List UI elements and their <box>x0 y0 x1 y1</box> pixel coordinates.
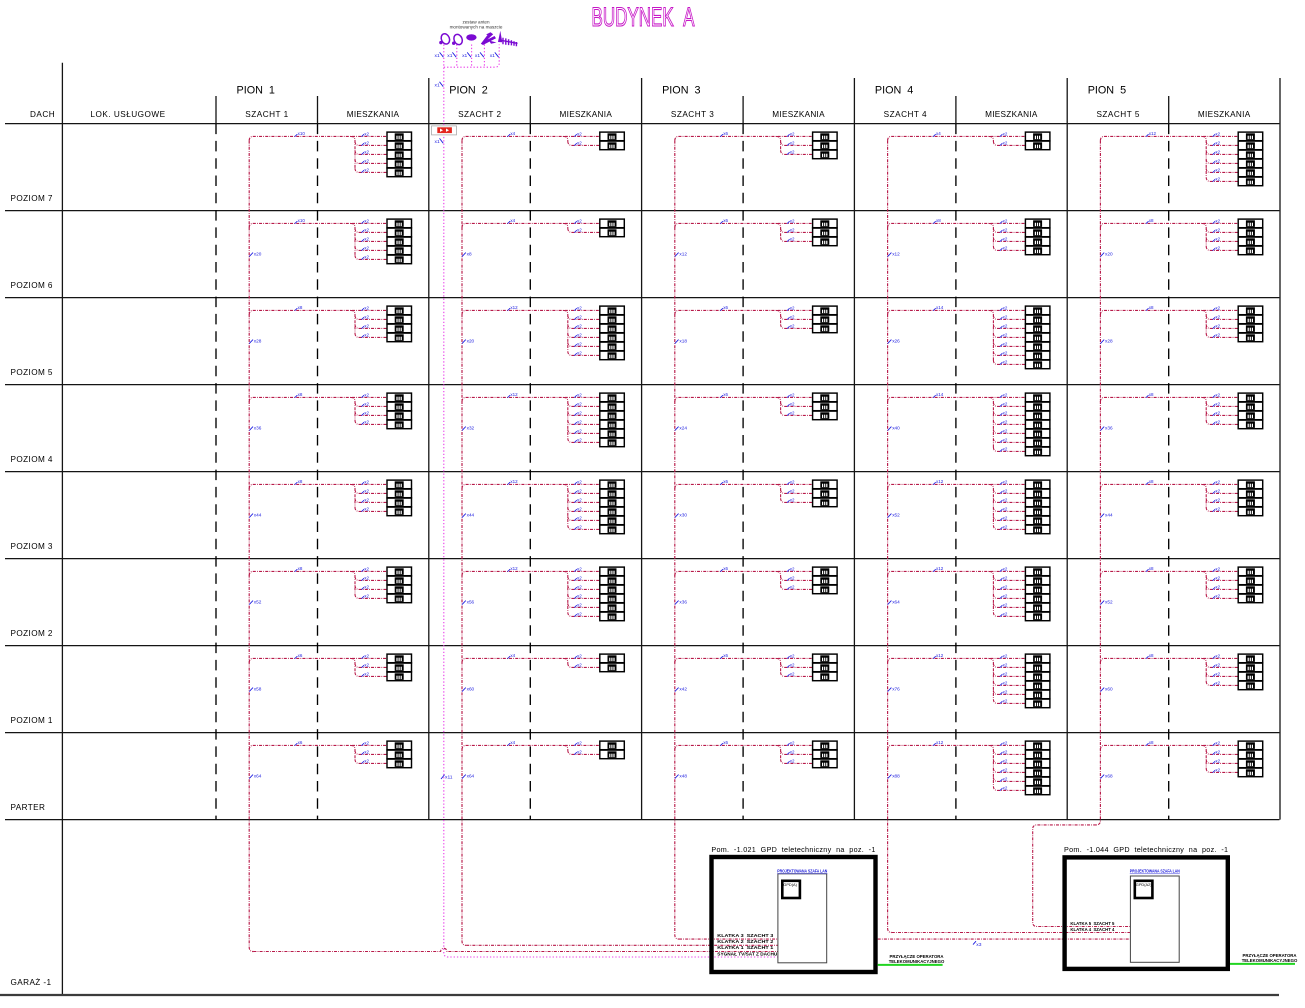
svg-text:x2: x2 <box>577 131 582 136</box>
svg-text:x2: x2 <box>1215 680 1220 685</box>
svg-text:x36: x36 <box>679 600 687 605</box>
svg-text:POZIOM 2: POZIOM 2 <box>11 629 53 638</box>
svg-text:x2: x2 <box>577 323 582 328</box>
svg-text:KLATKA 1 SZACHT 1: KLATKA 1 SZACHT 1 <box>717 945 774 950</box>
svg-text:x10: x10 <box>298 218 306 223</box>
svg-text:x10: x10 <box>298 131 306 136</box>
svg-text:x2: x2 <box>577 419 582 424</box>
svg-text:x2: x2 <box>1003 680 1008 685</box>
svg-text:x2: x2 <box>1215 506 1220 511</box>
svg-text:x26: x26 <box>892 339 900 344</box>
svg-text:x28: x28 <box>1105 339 1113 344</box>
svg-text:x2: x2 <box>790 488 795 493</box>
svg-text:x2: x2 <box>364 662 369 667</box>
svg-text:x1: x1 <box>462 53 467 59</box>
svg-text:x2: x2 <box>1215 218 1220 223</box>
svg-text:MIESZKANIA: MIESZKANIA <box>1198 110 1251 119</box>
svg-text:x2: x2 <box>577 314 582 319</box>
svg-text:x2: x2 <box>1003 323 1008 328</box>
svg-text:POZIOM 5: POZIOM 5 <box>11 368 53 377</box>
svg-text:x2: x2 <box>790 314 795 319</box>
svg-text:x2: x2 <box>364 419 369 424</box>
svg-text:x24: x24 <box>679 426 687 431</box>
svg-text:x2: x2 <box>1003 332 1008 337</box>
svg-text:x2: x2 <box>1003 785 1008 790</box>
svg-text:x2: x2 <box>1003 740 1008 745</box>
svg-text:x2: x2 <box>577 401 582 406</box>
svg-text:POZIOM 3: POZIOM 3 <box>11 542 53 551</box>
svg-text:x2: x2 <box>1215 566 1220 571</box>
svg-text:x2: x2 <box>790 131 795 136</box>
svg-text:x2: x2 <box>790 566 795 571</box>
svg-text:x1: x1 <box>447 53 452 59</box>
svg-text:x4: x4 <box>510 218 515 223</box>
svg-text:PARTER: PARTER <box>11 803 46 812</box>
svg-text:SZACHT 1: SZACHT 1 <box>245 110 288 119</box>
svg-text:PION 1: PION 1 <box>237 84 275 96</box>
svg-text:x30: x30 <box>679 513 687 518</box>
svg-text:PION 4: PION 4 <box>875 84 913 96</box>
svg-text:x2: x2 <box>364 671 369 676</box>
svg-text:x20: x20 <box>254 252 262 257</box>
svg-text:x40: x40 <box>892 426 900 431</box>
svg-text:MIESZKANIA: MIESZKANIA <box>772 110 825 119</box>
svg-text:x2: x2 <box>364 131 369 136</box>
svg-text:x6: x6 <box>723 131 728 136</box>
svg-text:x6: x6 <box>298 740 303 745</box>
svg-text:x11: x11 <box>445 775 453 781</box>
svg-text:x2: x2 <box>364 167 369 172</box>
svg-text:x32: x32 <box>467 426 475 431</box>
svg-text:x28: x28 <box>254 339 262 344</box>
svg-text:x2: x2 <box>1215 314 1220 319</box>
svg-text:TELEKOMUNIKACYJNEGO: TELEKOMUNIKACYJNEGO <box>889 959 945 964</box>
svg-text:KLATKA 5 SZACHT 5: KLATKA 5 SZACHT 5 <box>1070 921 1115 926</box>
svg-text:SZACHT 2: SZACHT 2 <box>458 110 501 119</box>
svg-text:x2: x2 <box>1215 749 1220 754</box>
svg-text:x8: x8 <box>467 252 472 257</box>
svg-text:x2: x2 <box>364 506 369 511</box>
svg-text:montowanych na maszcie: montowanych na maszcie <box>450 25 503 30</box>
svg-text:SYGNAŁ TV/SAT Z DACHU: SYGNAŁ TV/SAT Z DACHU <box>717 951 777 956</box>
svg-text:x2: x2 <box>1215 227 1220 232</box>
svg-text:x2: x2 <box>577 140 582 145</box>
svg-text:x2: x2 <box>1003 671 1008 676</box>
svg-text:x2: x2 <box>577 227 582 232</box>
svg-text:x2: x2 <box>577 515 582 520</box>
svg-text:x2: x2 <box>790 758 795 763</box>
svg-text:POZIOM 4: POZIOM 4 <box>11 455 53 464</box>
svg-text:MIESZKANIA: MIESZKANIA <box>347 110 400 119</box>
svg-text:x2: x2 <box>790 401 795 406</box>
svg-text:x2: x2 <box>1003 446 1008 451</box>
svg-text:x2: x2 <box>577 740 582 745</box>
svg-text:x2: x2 <box>1215 392 1220 397</box>
svg-text:x2: x2 <box>1215 584 1220 589</box>
svg-text:x52: x52 <box>254 600 262 605</box>
svg-text:x2: x2 <box>1003 593 1008 598</box>
svg-text:x2: x2 <box>1215 332 1220 337</box>
svg-text:LOK. USŁUGOWE: LOK. USŁUGOWE <box>90 110 165 119</box>
svg-text:BUDYNEK A: BUDYNEK A <box>592 2 695 32</box>
svg-text:x8: x8 <box>936 218 941 223</box>
svg-text:x12: x12 <box>510 305 518 310</box>
svg-text:x64: x64 <box>892 600 900 605</box>
svg-text:x2: x2 <box>577 437 582 442</box>
svg-text:x2: x2 <box>1003 314 1008 319</box>
svg-text:x2: x2 <box>1003 401 1008 406</box>
svg-text:x2: x2 <box>790 410 795 415</box>
svg-text:x14: x14 <box>936 392 944 397</box>
svg-text:x2: x2 <box>577 488 582 493</box>
svg-text:x2: x2 <box>1003 515 1008 520</box>
svg-text:x2: x2 <box>1003 662 1008 667</box>
svg-text:x6: x6 <box>723 392 728 397</box>
svg-text:x2: x2 <box>364 314 369 319</box>
svg-text:x2: x2 <box>790 227 795 232</box>
svg-text:x8: x8 <box>1149 566 1154 571</box>
svg-text:x2: x2 <box>1003 611 1008 616</box>
svg-text:x2: x2 <box>1003 653 1008 658</box>
svg-text:x48: x48 <box>679 774 687 779</box>
svg-text:x20: x20 <box>1105 252 1113 257</box>
svg-text:SZACHT 4: SZACHT 4 <box>884 110 927 119</box>
svg-text:x2: x2 <box>790 479 795 484</box>
svg-text:x2: x2 <box>364 653 369 658</box>
svg-text:x2: x2 <box>1003 497 1008 502</box>
svg-text:x2: x2 <box>1215 245 1220 250</box>
svg-text:x2: x2 <box>364 488 369 493</box>
svg-text:x2: x2 <box>1215 131 1220 136</box>
svg-text:PROJEKTOWANA SZAFA LAN: PROJEKTOWANA SZAFA LAN <box>777 869 827 874</box>
svg-text:x2: x2 <box>1003 131 1008 136</box>
svg-text:x18: x18 <box>679 339 687 344</box>
svg-text:x8: x8 <box>1149 653 1154 658</box>
svg-text:x12: x12 <box>892 252 900 257</box>
svg-text:x2: x2 <box>790 584 795 589</box>
svg-text:x1: x1 <box>435 53 440 59</box>
svg-text:x2: x2 <box>1215 671 1220 676</box>
svg-text:x2: x2 <box>1215 488 1220 493</box>
svg-text:x2: x2 <box>1215 140 1220 145</box>
svg-text:x2: x2 <box>364 566 369 571</box>
svg-text:x2: x2 <box>364 401 369 406</box>
svg-text:x2: x2 <box>577 392 582 397</box>
svg-text:x2: x2 <box>1003 218 1008 223</box>
svg-text:x2: x2 <box>577 611 582 616</box>
svg-text:POZIOM 1: POZIOM 1 <box>11 716 53 725</box>
svg-text:x2: x2 <box>577 602 582 607</box>
svg-text:x6: x6 <box>723 740 728 745</box>
svg-text:KLATKA 3 SZACHT 3: KLATKA 3 SZACHT 3 <box>717 933 774 938</box>
svg-text:MIESZKANIA: MIESZKANIA <box>560 110 613 119</box>
svg-text:x2: x2 <box>790 671 795 676</box>
svg-text:x1: x1 <box>490 53 495 59</box>
svg-text:x2: x2 <box>1215 236 1220 241</box>
svg-text:x2: x2 <box>1003 566 1008 571</box>
svg-text:x8: x8 <box>1149 218 1154 223</box>
svg-text:x2: x2 <box>364 593 369 598</box>
svg-text:x2: x2 <box>790 749 795 754</box>
svg-text:x2: x2 <box>1215 479 1220 484</box>
svg-text:x2: x2 <box>1003 437 1008 442</box>
svg-text:GARAŻ -1: GARAŻ -1 <box>11 977 52 987</box>
svg-text:Pom. -1.044 GPD teletechnic: Pom. -1.044 GPD teletechniczny na poz. -… <box>1064 845 1228 854</box>
svg-text:x2: x2 <box>364 575 369 580</box>
svg-text:x8: x8 <box>1149 305 1154 310</box>
svg-text:x2: x2 <box>577 341 582 346</box>
svg-text:x2: x2 <box>577 749 582 754</box>
svg-text:x2: x2 <box>577 662 582 667</box>
svg-text:KLATKA 4 SZACHT 4: KLATKA 4 SZACHT 4 <box>1070 927 1115 932</box>
svg-text:x68: x68 <box>1105 774 1113 779</box>
svg-text:x2: x2 <box>1215 767 1220 772</box>
svg-text:x2: x2 <box>364 245 369 250</box>
svg-text:x2: x2 <box>364 740 369 745</box>
svg-text:x2: x2 <box>1003 245 1008 250</box>
svg-text:x2: x2 <box>364 323 369 328</box>
svg-text:x6: x6 <box>723 653 728 658</box>
svg-text:x2: x2 <box>1215 419 1220 424</box>
svg-text:x64: x64 <box>467 774 475 779</box>
svg-text:x64: x64 <box>254 774 262 779</box>
svg-text:x12: x12 <box>1149 131 1157 136</box>
svg-text:x2: x2 <box>1003 776 1008 781</box>
svg-text:x12: x12 <box>936 566 944 571</box>
svg-text:x2: x2 <box>1215 149 1220 154</box>
svg-text:x56: x56 <box>467 600 475 605</box>
svg-text:x2: x2 <box>1003 419 1008 424</box>
svg-text:x2: x2 <box>577 305 582 310</box>
svg-text:x2: x2 <box>1003 524 1008 529</box>
svg-text:x2: x2 <box>577 497 582 502</box>
svg-text:x2: x2 <box>1003 350 1008 355</box>
svg-text:x2: x2 <box>1215 167 1220 172</box>
svg-text:x2: x2 <box>1215 758 1220 763</box>
svg-text:x1: x1 <box>435 82 440 88</box>
svg-text:x2: x2 <box>1215 323 1220 328</box>
svg-text:PION 3: PION 3 <box>662 84 700 96</box>
svg-text:x52: x52 <box>892 513 900 518</box>
svg-text:x2: x2 <box>577 584 582 589</box>
svg-text:POZIOM 7: POZIOM 7 <box>11 194 53 203</box>
svg-text:x8: x8 <box>298 566 303 571</box>
svg-text:x2: x2 <box>1215 653 1220 658</box>
svg-text:x42: x42 <box>679 687 687 692</box>
svg-text:x2: x2 <box>1003 506 1008 511</box>
svg-text:x12: x12 <box>510 392 518 397</box>
svg-text:x4: x4 <box>936 131 941 136</box>
svg-text:x2: x2 <box>1003 227 1008 232</box>
svg-text:x58: x58 <box>254 687 262 692</box>
svg-text:x2: x2 <box>790 323 795 328</box>
svg-text:x6: x6 <box>723 305 728 310</box>
svg-text:x8: x8 <box>298 479 303 484</box>
svg-text:x2: x2 <box>364 140 369 145</box>
svg-text:x2: x2 <box>577 506 582 511</box>
svg-text:x2: x2 <box>364 305 369 310</box>
svg-text:x60: x60 <box>467 687 475 692</box>
svg-text:x2: x2 <box>364 254 369 259</box>
svg-text:TELEKOMUNIKACYJNEGO: TELEKOMUNIKACYJNEGO <box>1242 958 1298 963</box>
svg-text:SZACHT 3: SZACHT 3 <box>671 110 714 119</box>
svg-text:x2: x2 <box>364 497 369 502</box>
svg-text:POZIOM 6: POZIOM 6 <box>11 281 53 290</box>
svg-text:x2: x2 <box>364 218 369 223</box>
svg-text:x44: x44 <box>467 513 475 518</box>
svg-text:x36: x36 <box>1105 426 1113 431</box>
svg-text:x88: x88 <box>892 774 900 779</box>
svg-text:x14: x14 <box>936 305 944 310</box>
svg-text:x2: x2 <box>1003 428 1008 433</box>
svg-text:x2: x2 <box>1003 479 1008 484</box>
svg-text:x6: x6 <box>723 479 728 484</box>
svg-text:x2: x2 <box>1003 410 1008 415</box>
svg-text:x2: x2 <box>577 350 582 355</box>
svg-text:x2: x2 <box>1003 236 1008 241</box>
svg-text:x4: x4 <box>510 653 515 658</box>
svg-text:x2: x2 <box>1003 488 1008 493</box>
svg-text:x2: x2 <box>577 218 582 223</box>
svg-text:x2: x2 <box>577 653 582 658</box>
svg-text:x2: x2 <box>790 497 795 502</box>
svg-text:x2: x2 <box>1003 359 1008 364</box>
svg-text:x2: x2 <box>364 158 369 163</box>
svg-text:x2: x2 <box>364 584 369 589</box>
svg-text:x2: x2 <box>790 305 795 310</box>
svg-text:x1: x1 <box>435 139 440 145</box>
svg-text:PROJEKTOWANA SZAFA LAN: PROJEKTOWANA SZAFA LAN <box>1130 869 1180 874</box>
svg-text:x44: x44 <box>254 513 262 518</box>
svg-text:x2: x2 <box>364 227 369 232</box>
svg-text:x20: x20 <box>467 339 475 344</box>
svg-text:x2: x2 <box>1003 305 1008 310</box>
svg-text:x4: x4 <box>510 131 515 136</box>
svg-text:x2: x2 <box>577 593 582 598</box>
svg-text:x6: x6 <box>723 218 728 223</box>
svg-text:GPD(A2): GPD(A2) <box>1136 882 1152 887</box>
svg-text:x4: x4 <box>510 740 515 745</box>
svg-text:Pom. -1.021 GPD teletechnic: Pom. -1.021 GPD teletechniczny na poz. -… <box>711 845 875 854</box>
svg-text:GPD(A): GPD(A) <box>783 882 797 887</box>
svg-text:DACH: DACH <box>30 110 55 119</box>
svg-text:x2: x2 <box>364 332 369 337</box>
svg-text:x2: x2 <box>1003 767 1008 772</box>
svg-text:x2: x2 <box>790 662 795 667</box>
svg-text:x8: x8 <box>298 392 303 397</box>
svg-text:x2: x2 <box>1215 305 1220 310</box>
svg-text:x2: x2 <box>1215 575 1220 580</box>
svg-text:x76: x76 <box>892 687 900 692</box>
svg-text:x2: x2 <box>790 236 795 241</box>
svg-text:x12: x12 <box>510 479 518 484</box>
svg-text:x2: x2 <box>1003 758 1008 763</box>
svg-text:x2: x2 <box>577 575 582 580</box>
svg-text:x2: x2 <box>790 140 795 145</box>
svg-text:x2: x2 <box>364 149 369 154</box>
svg-text:x2: x2 <box>1215 401 1220 406</box>
svg-text:x60: x60 <box>1105 687 1113 692</box>
svg-text:x2: x2 <box>1003 575 1008 580</box>
svg-text:x2: x2 <box>577 332 582 337</box>
svg-text:x2: x2 <box>1003 341 1008 346</box>
svg-text:x2: x2 <box>790 218 795 223</box>
svg-text:x8: x8 <box>298 305 303 310</box>
svg-text:x6: x6 <box>298 653 303 658</box>
svg-text:x2: x2 <box>364 749 369 754</box>
svg-text:x2: x2 <box>1215 410 1220 415</box>
svg-text:KLATKA 2 SZACHT 2: KLATKA 2 SZACHT 2 <box>717 939 774 944</box>
svg-text:x2: x2 <box>1003 689 1008 694</box>
svg-text:x2: x2 <box>1215 176 1220 181</box>
svg-text:x12: x12 <box>936 740 944 745</box>
svg-text:PION 2: PION 2 <box>449 84 487 96</box>
svg-text:x36: x36 <box>254 426 262 431</box>
svg-text:x2: x2 <box>1215 593 1220 598</box>
svg-text:x12: x12 <box>510 566 518 571</box>
svg-text:x2: x2 <box>1003 749 1008 754</box>
svg-text:x2: x2 <box>364 236 369 241</box>
svg-text:x2: x2 <box>1215 662 1220 667</box>
svg-text:x12: x12 <box>936 653 944 658</box>
svg-text:x2: x2 <box>577 566 582 571</box>
svg-text:PION 5: PION 5 <box>1088 84 1126 96</box>
svg-text:x12: x12 <box>679 252 687 257</box>
svg-text:x8: x8 <box>1149 740 1154 745</box>
svg-text:SZACHT 5: SZACHT 5 <box>1096 110 1139 119</box>
svg-text:x2: x2 <box>1003 584 1008 589</box>
svg-text:x1: x1 <box>475 53 480 59</box>
svg-text:x2: x2 <box>1215 740 1220 745</box>
svg-text:x6: x6 <box>723 566 728 571</box>
svg-text:x44: x44 <box>1105 513 1113 518</box>
svg-text:x2: x2 <box>577 524 582 529</box>
svg-text:x2: x2 <box>364 479 369 484</box>
svg-text:x2: x2 <box>1215 497 1220 502</box>
svg-text:x3: x3 <box>976 942 981 948</box>
svg-text:x2: x2 <box>1003 602 1008 607</box>
svg-text:x2: x2 <box>790 392 795 397</box>
svg-text:x12: x12 <box>936 479 944 484</box>
svg-text:x2: x2 <box>790 575 795 580</box>
svg-text:x2: x2 <box>1003 140 1008 145</box>
svg-text:x2: x2 <box>364 392 369 397</box>
svg-text:x2: x2 <box>1003 392 1008 397</box>
svg-text:x2: x2 <box>790 740 795 745</box>
svg-text:x2: x2 <box>577 410 582 415</box>
svg-text:x2: x2 <box>790 653 795 658</box>
svg-text:x2: x2 <box>790 149 795 154</box>
svg-text:x8: x8 <box>1149 479 1154 484</box>
svg-text:x2: x2 <box>577 428 582 433</box>
svg-text:MIESZKANIA: MIESZKANIA <box>985 110 1038 119</box>
svg-text:x2: x2 <box>364 410 369 415</box>
svg-text:x2: x2 <box>1215 158 1220 163</box>
svg-text:x2: x2 <box>577 479 582 484</box>
svg-text:x2: x2 <box>364 758 369 763</box>
svg-text:x52: x52 <box>1105 600 1113 605</box>
svg-text:x2: x2 <box>1003 698 1008 703</box>
svg-text:x8: x8 <box>1149 392 1154 397</box>
